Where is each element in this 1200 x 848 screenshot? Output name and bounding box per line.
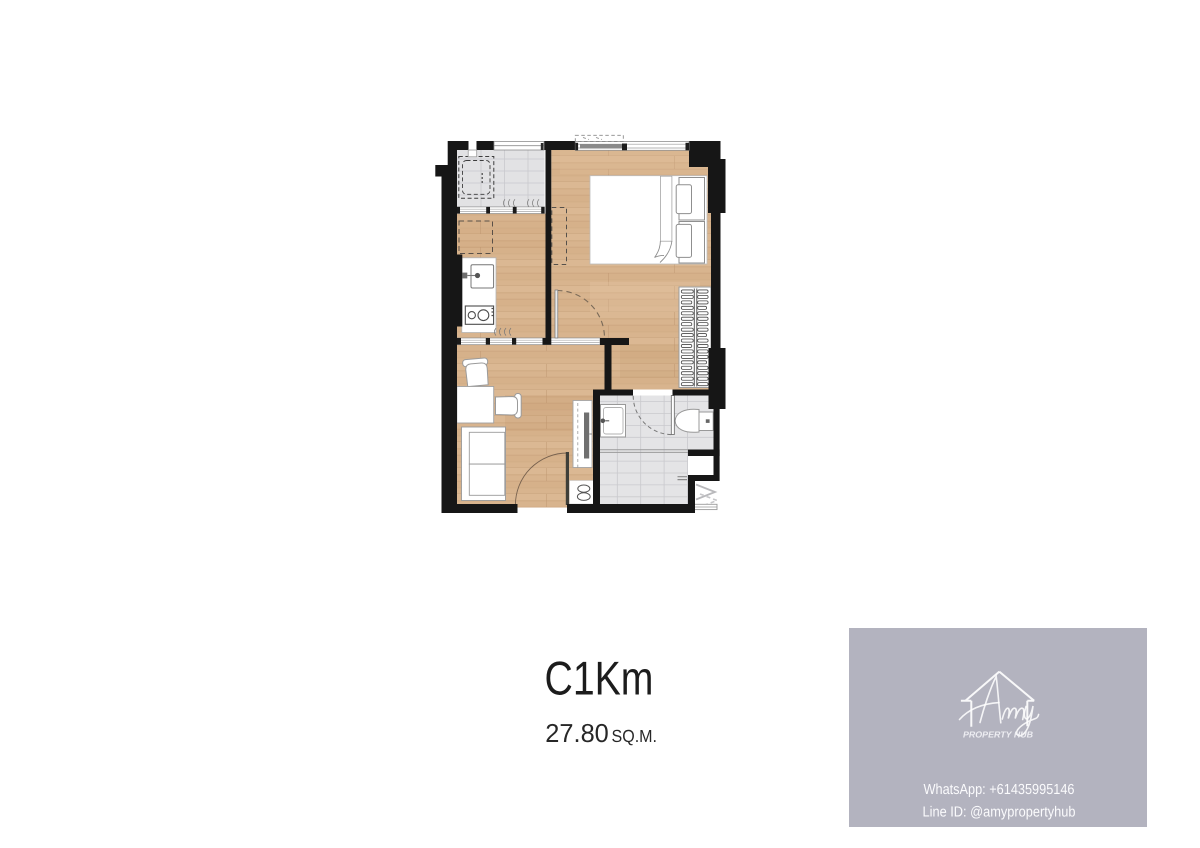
svg-text:Line ID: @amypropertyhub: Line ID: @amypropertyhub [923, 805, 1076, 821]
svg-text:SQ.M.: SQ.M. [612, 726, 658, 746]
svg-text:WhatsApp: +61435995146: WhatsApp: +61435995146 [924, 782, 1075, 798]
svg-text:27.80: 27.80 [545, 718, 609, 748]
svg-text:PROPERTY HUB: PROPERTY HUB [963, 730, 1034, 740]
svg-text:C1Km: C1Km [545, 653, 654, 706]
